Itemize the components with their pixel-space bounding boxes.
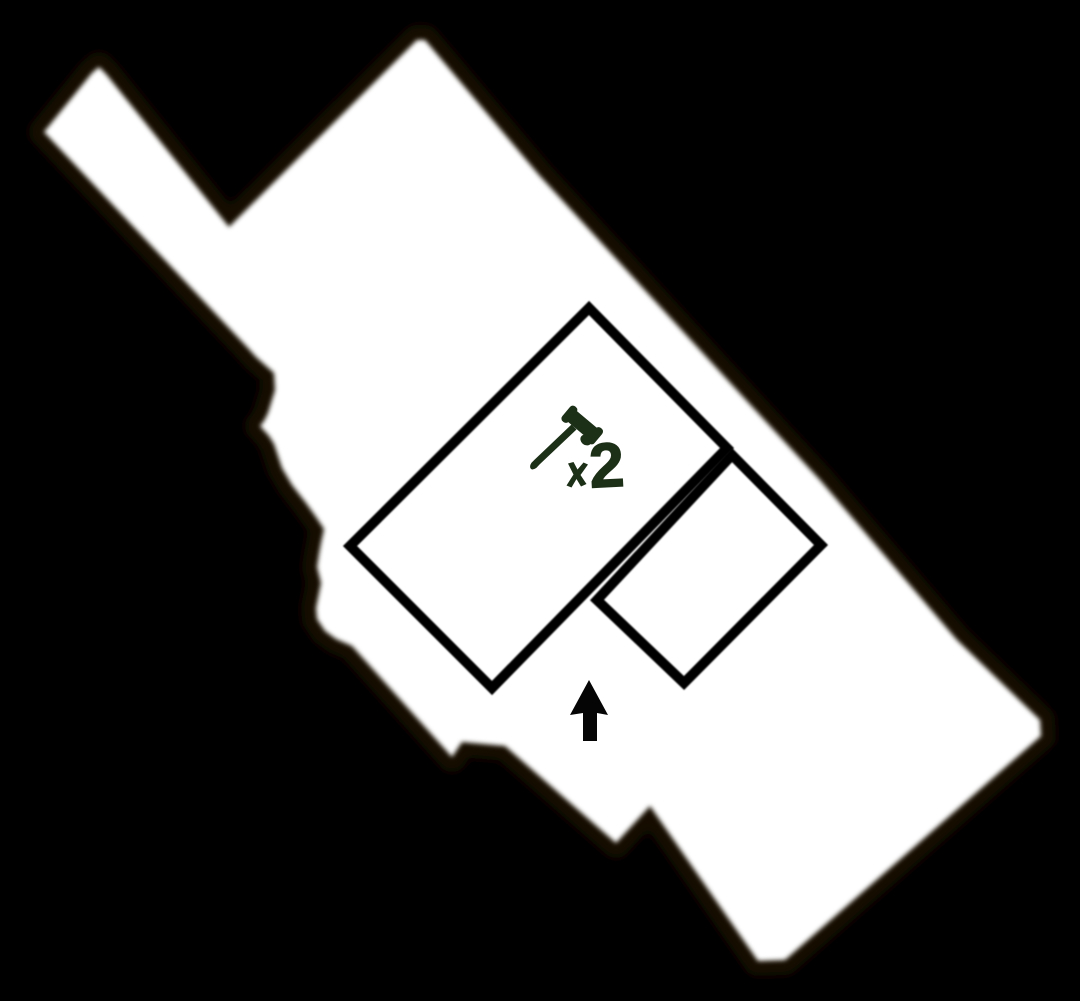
svg-text:2: 2 [587,430,626,502]
